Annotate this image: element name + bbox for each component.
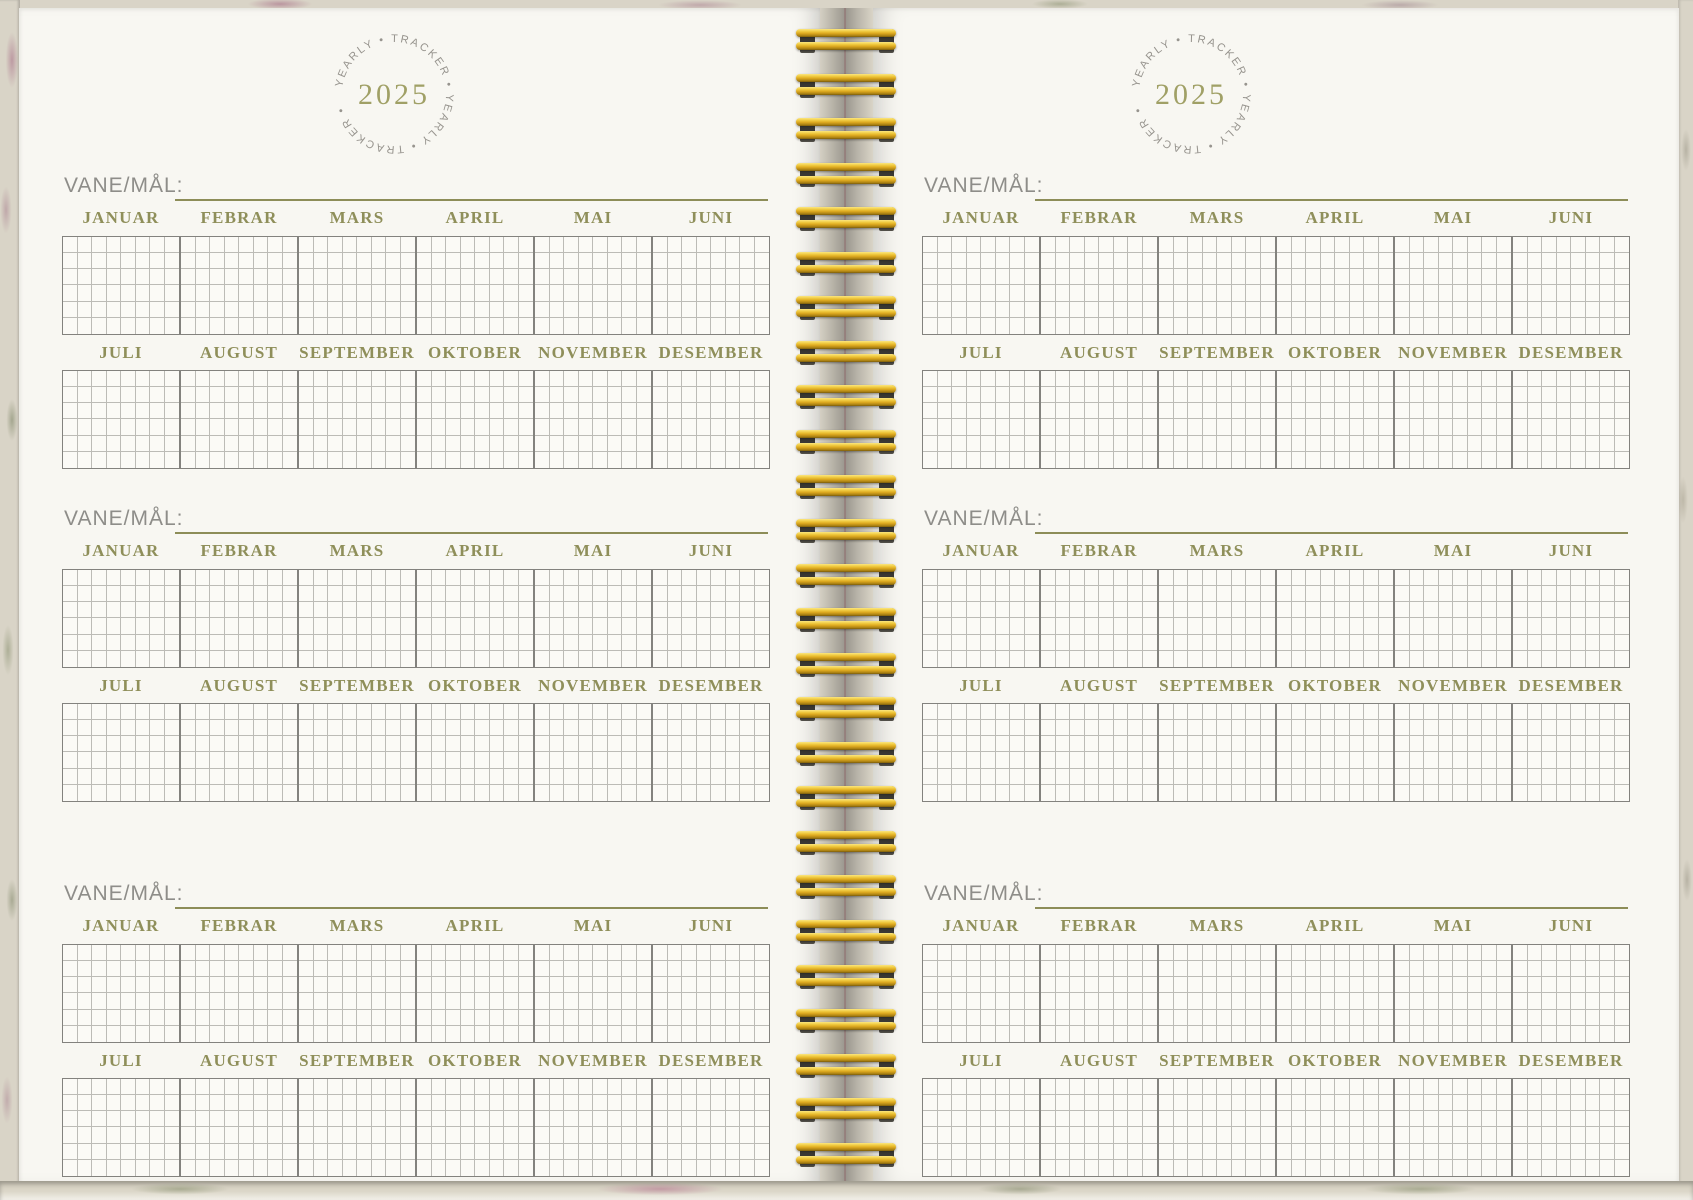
tracker-cell[interactable]	[1615, 387, 1630, 403]
tracker-cell[interactable]	[1615, 635, 1630, 651]
tracker-cell[interactable]	[1321, 993, 1336, 1009]
tracker-cell[interactable]	[461, 736, 476, 752]
tracker-cell[interactable]	[328, 371, 343, 387]
tracker-cell[interactable]	[1513, 452, 1528, 468]
tracker-cell[interactable]	[1277, 752, 1292, 768]
tracker-cell[interactable]	[1350, 1160, 1365, 1176]
tracker-cell[interactable]	[608, 1095, 623, 1111]
tracker-cell[interactable]	[1482, 570, 1497, 586]
tracker-cell[interactable]	[1497, 452, 1512, 468]
tracker-cell[interactable]	[417, 253, 432, 269]
tracker-cell[interactable]	[136, 1160, 151, 1176]
tracker-cell[interactable]	[1468, 371, 1483, 387]
tracker-cell[interactable]	[268, 977, 283, 993]
tracker-cell[interactable]	[181, 570, 196, 586]
tracker-cell[interactable]	[165, 436, 180, 452]
tracker-cell[interactable]	[668, 1010, 683, 1026]
tracker-cell[interactable]	[740, 570, 755, 586]
tracker-cell[interactable]	[78, 1010, 93, 1026]
tracker-cell[interactable]	[1410, 1026, 1425, 1042]
tracker-cell[interactable]	[579, 419, 594, 435]
tracker-cell[interactable]	[268, 704, 283, 720]
tracker-cell[interactable]	[504, 570, 519, 586]
tracker-cell[interactable]	[504, 651, 519, 667]
tracker-cell[interactable]	[1364, 704, 1379, 720]
tracker-cell[interactable]	[637, 1127, 652, 1143]
tracker-cell[interactable]	[1128, 720, 1143, 736]
tracker-cell[interactable]	[1557, 961, 1572, 977]
tracker-cell[interactable]	[225, 436, 240, 452]
tracker-cell[interactable]	[225, 720, 240, 736]
tracker-cell[interactable]	[1099, 1127, 1114, 1143]
tracker-cell[interactable]	[490, 752, 505, 768]
tracker-cell[interactable]	[1056, 269, 1071, 285]
tracker-cell[interactable]	[386, 618, 401, 634]
tracker-cell[interactable]	[1010, 785, 1025, 801]
tracker-cell[interactable]	[1557, 736, 1572, 752]
tracker-cell[interactable]	[1439, 1026, 1454, 1042]
tracker-cell[interactable]	[938, 253, 953, 269]
tracker-cell[interactable]	[981, 285, 996, 301]
tracker-cell[interactable]	[1128, 419, 1143, 435]
tracker-cell[interactable]	[1410, 318, 1425, 334]
tracker-cell[interactable]	[938, 704, 953, 720]
tracker-cell[interactable]	[1410, 237, 1425, 253]
tracker-cell[interactable]	[1203, 618, 1218, 634]
tracker-cell[interactable]	[1056, 371, 1071, 387]
tracker-cell[interactable]	[1497, 1127, 1512, 1143]
tracker-cell[interactable]	[564, 1160, 579, 1176]
tracker-cell[interactable]	[755, 387, 770, 403]
tracker-cell[interactable]	[417, 1010, 432, 1026]
tracker-cell[interactable]	[726, 1079, 741, 1095]
tracker-cell[interactable]	[593, 403, 608, 419]
tracker-cell[interactable]	[1056, 720, 1071, 736]
tracker-cell[interactable]	[239, 1127, 254, 1143]
tracker-cell[interactable]	[446, 253, 461, 269]
tracker-cell[interactable]	[1350, 618, 1365, 634]
tracker-cell[interactable]	[564, 1010, 579, 1026]
tracker-cell[interactable]	[1085, 1095, 1100, 1111]
tracker-cell[interactable]	[268, 736, 283, 752]
tracker-cell[interactable]	[1615, 403, 1630, 419]
tracker-cell[interactable]	[622, 720, 637, 736]
tracker-cell[interactable]	[653, 769, 668, 785]
tracker-cell[interactable]	[343, 285, 358, 301]
tracker-cell[interactable]	[165, 785, 180, 801]
tracker-cell[interactable]	[1497, 1144, 1512, 1160]
tracker-cell[interactable]	[923, 618, 938, 634]
tracker-cell[interactable]	[1217, 1010, 1232, 1026]
tracker-cell[interactable]	[1586, 1127, 1601, 1143]
tracker-cell[interactable]	[967, 371, 982, 387]
tracker-cell[interactable]	[1350, 704, 1365, 720]
tracker-cell[interactable]	[579, 318, 594, 334]
tracker-cell[interactable]	[1350, 720, 1365, 736]
tracker-cell[interactable]	[1203, 419, 1218, 435]
tracker-cell[interactable]	[1395, 635, 1410, 651]
tracker-cell[interactable]	[1292, 602, 1307, 618]
tracker-cell[interactable]	[1085, 387, 1100, 403]
tracker-cell[interactable]	[1497, 318, 1512, 334]
tracker-cell[interactable]	[196, 1160, 211, 1176]
tracker-cell[interactable]	[92, 635, 107, 651]
tracker-cell[interactable]	[1557, 452, 1572, 468]
tracker-cell[interactable]	[535, 302, 550, 318]
tracker-cell[interactable]	[1261, 602, 1276, 618]
tracker-cell[interactable]	[1246, 961, 1261, 977]
tracker-cell[interactable]	[1085, 945, 1100, 961]
tracker-cell[interactable]	[755, 618, 770, 634]
tracker-cell[interactable]	[1557, 436, 1572, 452]
tracker-cell[interactable]	[682, 269, 697, 285]
tracker-cell[interactable]	[1542, 769, 1557, 785]
tracker-cell[interactable]	[697, 302, 712, 318]
tracker-cell[interactable]	[1410, 452, 1425, 468]
tracker-cell[interactable]	[401, 1010, 416, 1026]
tracker-cell[interactable]	[622, 237, 637, 253]
tracker-cell[interactable]	[1615, 1079, 1630, 1095]
tracker-cell[interactable]	[1528, 785, 1543, 801]
tracker-cell[interactable]	[981, 769, 996, 785]
tracker-cell[interactable]	[1410, 436, 1425, 452]
tracker-cell[interactable]	[1410, 269, 1425, 285]
tracker-cell[interactable]	[1292, 1010, 1307, 1026]
tracker-cell[interactable]	[1232, 785, 1247, 801]
tracker-cell[interactable]	[78, 704, 93, 720]
tracker-cell[interactable]	[357, 752, 372, 768]
tracker-cell[interactable]	[196, 1144, 211, 1160]
tracker-cell[interactable]	[254, 436, 269, 452]
tracker-cell[interactable]	[1070, 961, 1085, 977]
tracker-cell[interactable]	[357, 1160, 372, 1176]
tracker-cell[interactable]	[357, 635, 372, 651]
tracker-cell[interactable]	[593, 1160, 608, 1176]
tracker-cell[interactable]	[1321, 253, 1336, 269]
tracker-cell[interactable]	[1306, 769, 1321, 785]
tracker-cell[interactable]	[579, 1095, 594, 1111]
tracker-cell[interactable]	[1025, 945, 1040, 961]
tracker-cell[interactable]	[136, 269, 151, 285]
tracker-cell[interactable]	[314, 1111, 329, 1127]
tracker-cell[interactable]	[1143, 1026, 1158, 1042]
tracker-cell[interactable]	[550, 285, 565, 301]
tracker-cell[interactable]	[579, 237, 594, 253]
tracker-cell[interactable]	[1159, 752, 1174, 768]
tracker-cell[interactable]	[1395, 977, 1410, 993]
tracker-cell[interactable]	[726, 285, 741, 301]
tracker-cell[interactable]	[1439, 602, 1454, 618]
tracker-cell[interactable]	[1364, 586, 1379, 602]
tracker-cell[interactable]	[1557, 618, 1572, 634]
tracker-cell[interactable]	[1410, 961, 1425, 977]
tracker-cell[interactable]	[755, 1127, 770, 1143]
tracker-cell[interactable]	[1085, 302, 1100, 318]
tracker-cell[interactable]	[1128, 977, 1143, 993]
tracker-cell[interactable]	[1379, 1010, 1394, 1026]
tracker-cell[interactable]	[1025, 586, 1040, 602]
tracker-cell[interactable]	[1277, 1079, 1292, 1095]
tracker-cell[interactable]	[726, 945, 741, 961]
tracker-cell[interactable]	[1217, 961, 1232, 977]
tracker-cell[interactable]	[107, 285, 122, 301]
tracker-cell[interactable]	[136, 945, 151, 961]
tracker-cell[interactable]	[1513, 635, 1528, 651]
tracker-cell[interactable]	[210, 785, 225, 801]
tracker-cell[interactable]	[1497, 436, 1512, 452]
tracker-cell[interactable]	[1482, 993, 1497, 1009]
tracker-cell[interactable]	[1277, 704, 1292, 720]
tracker-cell[interactable]	[1025, 318, 1040, 334]
tracker-cell[interactable]	[1306, 1111, 1321, 1127]
tracker-cell[interactable]	[1056, 1144, 1071, 1160]
tracker-cell[interactable]	[475, 302, 490, 318]
tracker-cell[interactable]	[1188, 285, 1203, 301]
tracker-cell[interactable]	[622, 769, 637, 785]
tracker-cell[interactable]	[740, 1144, 755, 1160]
tracker-cell[interactable]	[268, 1111, 283, 1127]
tracker-cell[interactable]	[283, 403, 298, 419]
tracker-cell[interactable]	[1497, 977, 1512, 993]
tracker-cell[interactable]	[755, 419, 770, 435]
tracker-cell[interactable]	[78, 769, 93, 785]
tracker-cell[interactable]	[579, 285, 594, 301]
tracker-cell[interactable]	[1143, 1144, 1158, 1160]
tracker-cell[interactable]	[475, 651, 490, 667]
tracker-cell[interactable]	[519, 269, 534, 285]
tracker-cell[interactable]	[299, 285, 314, 301]
tracker-cell[interactable]	[1439, 993, 1454, 1009]
tracker-cell[interactable]	[401, 651, 416, 667]
tracker-cell[interactable]	[1557, 945, 1572, 961]
tracker-cell[interactable]	[1468, 1127, 1483, 1143]
tracker-cell[interactable]	[1335, 1026, 1350, 1042]
tracker-cell[interactable]	[923, 387, 938, 403]
tracker-cell[interactable]	[210, 1144, 225, 1160]
tracker-cell[interactable]	[1600, 635, 1615, 651]
tracker-cell[interactable]	[225, 602, 240, 618]
tracker-cell[interactable]	[923, 961, 938, 977]
tracker-cell[interactable]	[1143, 452, 1158, 468]
tracker-cell[interactable]	[1143, 961, 1158, 977]
tracker-cell[interactable]	[1586, 269, 1601, 285]
tracker-cell[interactable]	[1600, 1160, 1615, 1176]
tracker-cell[interactable]	[475, 752, 490, 768]
tracker-cell[interactable]	[1025, 452, 1040, 468]
tracker-cell[interactable]	[740, 253, 755, 269]
tracker-cell[interactable]	[417, 752, 432, 768]
tracker-cell[interactable]	[1114, 1079, 1129, 1095]
tracker-cell[interactable]	[92, 993, 107, 1009]
tracker-cell[interactable]	[343, 635, 358, 651]
tracker-cell[interactable]	[1528, 752, 1543, 768]
tracker-cell[interactable]	[1335, 635, 1350, 651]
tracker-cell[interactable]	[225, 1010, 240, 1026]
tracker-cell[interactable]	[564, 387, 579, 403]
tracker-cell[interactable]	[593, 785, 608, 801]
tracker-cell[interactable]	[1025, 602, 1040, 618]
tracker-cell[interactable]	[1232, 618, 1247, 634]
tracker-cell[interactable]	[653, 602, 668, 618]
tracker-cell[interactable]	[1350, 253, 1365, 269]
tracker-cell[interactable]	[1379, 1026, 1394, 1042]
tracker-cell[interactable]	[637, 720, 652, 736]
tracker-cell[interactable]	[1424, 318, 1439, 334]
tracker-cell[interactable]	[1513, 993, 1528, 1009]
tracker-cell[interactable]	[1292, 419, 1307, 435]
tracker-cell[interactable]	[196, 371, 211, 387]
tracker-cell[interactable]	[1114, 269, 1129, 285]
tracker-cell[interactable]	[938, 651, 953, 667]
tracker-cell[interactable]	[92, 387, 107, 403]
tracker-cell[interactable]	[1571, 1127, 1586, 1143]
tracker-cell[interactable]	[637, 285, 652, 301]
tracker-cell[interactable]	[1586, 785, 1601, 801]
tracker-cell[interactable]	[608, 602, 623, 618]
tracker-cell[interactable]	[1321, 371, 1336, 387]
tracker-cell[interactable]	[952, 403, 967, 419]
tracker-cell[interactable]	[519, 586, 534, 602]
tracker-cell[interactable]	[1232, 1026, 1247, 1042]
tracker-cell[interactable]	[196, 752, 211, 768]
tracker-cell[interactable]	[981, 570, 996, 586]
tracker-cell[interactable]	[1557, 387, 1572, 403]
tracker-cell[interactable]	[461, 318, 476, 334]
tracker-cell[interactable]	[1128, 318, 1143, 334]
tracker-cell[interactable]	[1557, 419, 1572, 435]
tracker-cell[interactable]	[1292, 403, 1307, 419]
tracker-cell[interactable]	[1379, 785, 1394, 801]
tracker-cell[interactable]	[1468, 769, 1483, 785]
tracker-cell[interactable]	[1056, 785, 1071, 801]
tracker-cell[interactable]	[711, 651, 726, 667]
tracker-cell[interactable]	[1615, 961, 1630, 977]
tracker-cell[interactable]	[981, 436, 996, 452]
tracker-cell[interactable]	[1410, 635, 1425, 651]
tracker-cell[interactable]	[711, 993, 726, 1009]
tracker-cell[interactable]	[1424, 961, 1439, 977]
tracker-cell[interactable]	[519, 237, 534, 253]
tracker-cell[interactable]	[386, 785, 401, 801]
tracker-cell[interactable]	[668, 651, 683, 667]
tracker-cell[interactable]	[755, 285, 770, 301]
tracker-cell[interactable]	[996, 1095, 1011, 1111]
tracker-cell[interactable]	[1056, 993, 1071, 1009]
tracker-cell[interactable]	[1513, 570, 1528, 586]
tracker-cell[interactable]	[254, 785, 269, 801]
tracker-cell[interactable]	[1025, 1144, 1040, 1160]
tracker-cell[interactable]	[196, 269, 211, 285]
tracker-cell[interactable]	[668, 318, 683, 334]
tracker-cell[interactable]	[1203, 586, 1218, 602]
tracker-cell[interactable]	[401, 452, 416, 468]
tracker-cell[interactable]	[1513, 302, 1528, 318]
tracker-cell[interactable]	[432, 945, 447, 961]
tracker-cell[interactable]	[593, 436, 608, 452]
tracker-cell[interactable]	[923, 752, 938, 768]
tracker-cell[interactable]	[1571, 1144, 1586, 1160]
tracker-cell[interactable]	[981, 651, 996, 667]
tracker-cell[interactable]	[121, 1026, 136, 1042]
tracker-cell[interactable]	[504, 785, 519, 801]
tracker-cell[interactable]	[63, 651, 78, 667]
tracker-cell[interactable]	[697, 318, 712, 334]
tracker-cell[interactable]	[1041, 945, 1056, 961]
tracker-cell[interactable]	[504, 1127, 519, 1143]
tracker-cell[interactable]	[432, 269, 447, 285]
tracker-cell[interactable]	[1482, 419, 1497, 435]
tracker-cell[interactable]	[1041, 302, 1056, 318]
tracker-cell[interactable]	[1513, 436, 1528, 452]
tracker-cell[interactable]	[1335, 371, 1350, 387]
tracker-cell[interactable]	[1410, 993, 1425, 1009]
tracker-cell[interactable]	[564, 419, 579, 435]
tracker-cell[interactable]	[475, 720, 490, 736]
tracker-cell[interactable]	[1335, 945, 1350, 961]
tracker-cell[interactable]	[1143, 635, 1158, 651]
tracker-cell[interactable]	[210, 285, 225, 301]
tracker-cell[interactable]	[1542, 704, 1557, 720]
tracker-cell[interactable]	[1586, 618, 1601, 634]
tracker-cell[interactable]	[1114, 769, 1129, 785]
tracker-cell[interactable]	[1468, 635, 1483, 651]
tracker-cell[interactable]	[755, 1010, 770, 1026]
tracker-cell[interactable]	[1041, 419, 1056, 435]
tracker-cell[interactable]	[343, 371, 358, 387]
tracker-cell[interactable]	[1557, 1010, 1572, 1026]
tracker-cell[interactable]	[1615, 736, 1630, 752]
tracker-cell[interactable]	[1232, 651, 1247, 667]
tracker-cell[interactable]	[150, 285, 165, 301]
tracker-cell[interactable]	[938, 945, 953, 961]
tracker-cell[interactable]	[107, 1010, 122, 1026]
tracker-cell[interactable]	[740, 419, 755, 435]
tracker-cell[interactable]	[593, 452, 608, 468]
tracker-cell[interactable]	[711, 635, 726, 651]
tracker-cell[interactable]	[1174, 785, 1189, 801]
tracker-cell[interactable]	[740, 635, 755, 651]
tracker-cell[interactable]	[1114, 1026, 1129, 1042]
tracker-cell[interactable]	[1410, 387, 1425, 403]
tracker-cell[interactable]	[210, 704, 225, 720]
tracker-cell[interactable]	[254, 570, 269, 586]
tracker-cell[interactable]	[239, 371, 254, 387]
tracker-cell[interactable]	[268, 285, 283, 301]
tracker-cell[interactable]	[938, 1111, 953, 1127]
tracker-cell[interactable]	[1557, 720, 1572, 736]
tracker-cell[interactable]	[225, 302, 240, 318]
tracker-cell[interactable]	[1277, 961, 1292, 977]
tracker-cell[interactable]	[1041, 720, 1056, 736]
tracker-cell[interactable]	[1188, 269, 1203, 285]
tracker-cell[interactable]	[299, 993, 314, 1009]
tracker-cell[interactable]	[1041, 1026, 1056, 1042]
tracker-cell[interactable]	[490, 945, 505, 961]
tracker-cell[interactable]	[1571, 570, 1586, 586]
tracker-cell[interactable]	[225, 1026, 240, 1042]
tracker-cell[interactable]	[740, 785, 755, 801]
tracker-cell[interactable]	[314, 1026, 329, 1042]
tracker-cell[interactable]	[535, 285, 550, 301]
tracker-cell[interactable]	[165, 570, 180, 586]
tracker-cell[interactable]	[996, 253, 1011, 269]
tracker-cell[interactable]	[952, 586, 967, 602]
tracker-cell[interactable]	[63, 237, 78, 253]
tracker-cell[interactable]	[923, 785, 938, 801]
tracker-cell[interactable]	[1615, 945, 1630, 961]
tracker-cell[interactable]	[121, 452, 136, 468]
tracker-cell[interactable]	[196, 403, 211, 419]
